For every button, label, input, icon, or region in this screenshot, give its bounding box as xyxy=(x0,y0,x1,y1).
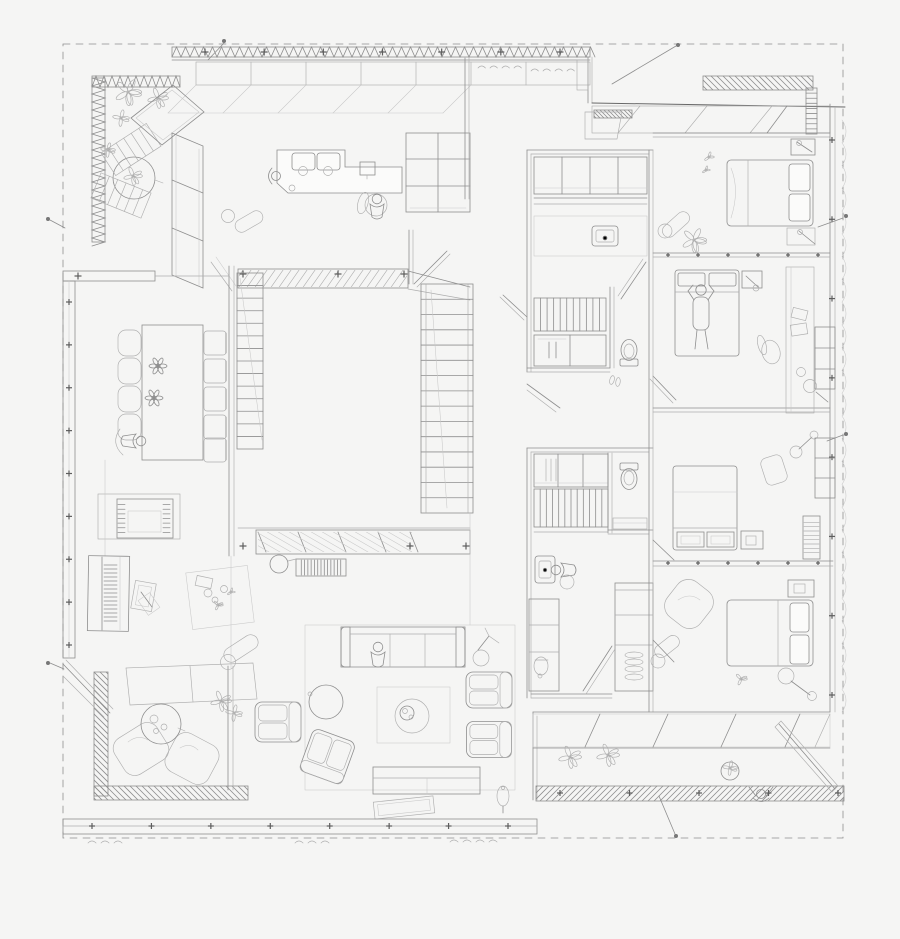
sofa xyxy=(341,627,465,667)
sideboard-rect xyxy=(128,511,161,532)
callout-dot xyxy=(844,432,848,436)
bedroom-2-rect xyxy=(790,323,808,336)
bathroom-b-rect xyxy=(613,518,647,529)
piano-corner xyxy=(87,556,160,632)
atrium-line xyxy=(410,532,418,552)
south-band-waves xyxy=(88,841,122,843)
atrium xyxy=(47,257,478,668)
door-leaf xyxy=(503,295,527,317)
desk-chair xyxy=(759,338,783,366)
play-rug-circle xyxy=(212,597,218,603)
terrace-south-line xyxy=(721,714,736,747)
roof-north-line xyxy=(333,85,361,113)
terrace-south-line xyxy=(659,796,675,834)
bedroom-2-line xyxy=(816,392,828,402)
play-rug-circle xyxy=(204,589,212,597)
nightstand xyxy=(788,580,814,597)
bathroom-a-circle xyxy=(603,236,607,240)
armchair xyxy=(466,672,512,708)
bathroom-b-ellipse xyxy=(625,674,643,680)
slippers-icon xyxy=(609,375,616,385)
bathroom-a xyxy=(527,150,676,412)
bathroom-a-line xyxy=(618,259,643,296)
armchair xyxy=(467,722,512,758)
roof-east-rect xyxy=(577,60,588,90)
bathroom-a-line xyxy=(527,390,556,412)
chair xyxy=(204,415,226,439)
floor-cushion xyxy=(161,728,224,789)
rug xyxy=(186,565,254,629)
stairs-down xyxy=(534,298,606,331)
terrace-south-line xyxy=(785,714,800,747)
play-rug xyxy=(186,565,254,629)
pillow xyxy=(790,603,809,632)
annotations-line xyxy=(612,46,676,84)
bedroom-master-plant xyxy=(702,166,710,173)
roof-north-line xyxy=(388,85,416,113)
bedroom-master-plant xyxy=(704,152,714,161)
bathroom-b-ellipse xyxy=(625,659,643,665)
chair xyxy=(204,438,226,462)
bedroom-master-line xyxy=(797,142,812,152)
corridor-line xyxy=(500,297,524,320)
sideboard-louver xyxy=(118,505,125,533)
pillow xyxy=(789,194,810,221)
roof-ladder xyxy=(806,88,817,134)
bedroom-3-louver xyxy=(804,522,819,552)
pillow xyxy=(790,635,809,664)
bedroom-2-circle xyxy=(804,380,817,393)
chair xyxy=(118,358,141,384)
door-leaf xyxy=(583,646,612,691)
armchair xyxy=(299,728,357,786)
bathroom-b-line xyxy=(586,649,615,694)
desk-chair xyxy=(355,191,370,215)
door-mat xyxy=(373,796,434,819)
sunken-lounge-path xyxy=(128,737,148,742)
patio-northwest-line xyxy=(172,228,203,241)
bathroom-a-line xyxy=(650,379,673,403)
bedroom-4-line xyxy=(791,681,810,695)
round-stool xyxy=(270,555,288,573)
roof-north-line xyxy=(223,85,251,113)
roof-north xyxy=(168,47,595,113)
atrium-line xyxy=(240,278,262,440)
play-rug-rect xyxy=(195,575,213,588)
vent-marks xyxy=(531,69,574,71)
bedroom-4 xyxy=(651,574,817,701)
glass-partition xyxy=(172,133,203,288)
shower-door xyxy=(621,262,646,299)
patio-northwest-line xyxy=(172,180,203,193)
dining-table xyxy=(142,325,203,460)
bolster xyxy=(652,633,682,660)
lower-wall-band xyxy=(63,819,537,834)
plant-icon xyxy=(558,745,581,768)
desk xyxy=(786,267,814,413)
plant-icon xyxy=(736,674,748,686)
bedroom-3-line xyxy=(799,437,812,449)
door-leaf xyxy=(414,251,447,284)
callout-dot xyxy=(844,214,848,218)
callout-dot xyxy=(222,39,226,43)
atrium-line xyxy=(431,290,447,508)
living-room-line xyxy=(478,636,489,650)
sunken-lounge-line xyxy=(190,666,193,702)
bathroom-a-ellipse xyxy=(615,377,621,387)
bolster xyxy=(221,632,261,665)
bathroom-b-circle xyxy=(543,568,546,571)
bedroom-2-line xyxy=(746,276,758,287)
living-room-line xyxy=(485,628,489,636)
cabinet xyxy=(529,599,559,691)
bridge-beam xyxy=(238,269,408,288)
living-room-circle xyxy=(400,706,414,720)
roof-north-line xyxy=(443,85,471,113)
stool xyxy=(560,575,574,589)
hedge-line xyxy=(842,120,846,712)
piano-corner-rect xyxy=(138,593,160,616)
bench xyxy=(787,228,815,245)
bedroom-3-rect xyxy=(746,536,756,545)
coffee-table xyxy=(395,699,429,733)
terrace-south-plant xyxy=(723,761,738,776)
roof-hatch-strip xyxy=(579,76,839,90)
low-table xyxy=(141,704,181,744)
bedroom-master xyxy=(658,139,815,253)
trellis-wall xyxy=(92,78,105,246)
wall-shelf xyxy=(815,438,835,498)
sunken-lounge-path xyxy=(180,745,198,750)
nightstand xyxy=(791,139,815,155)
pillow xyxy=(789,164,810,191)
sideboard xyxy=(98,460,180,556)
side-table xyxy=(309,685,343,719)
bedroom-4-circle xyxy=(808,692,817,701)
piano-keys xyxy=(104,565,117,621)
roof-east-line xyxy=(750,106,772,133)
bedroom-master-line xyxy=(799,231,815,244)
play-rug-circle xyxy=(221,586,228,593)
atrium-line xyxy=(298,532,306,552)
roof-north-line xyxy=(168,85,196,113)
sunken-lounge-circle xyxy=(161,724,167,730)
sunken-lounge-line xyxy=(178,728,185,731)
floor-lamp xyxy=(497,786,509,806)
bedroom-2-circle xyxy=(797,368,806,377)
beanbag xyxy=(659,574,719,635)
chair xyxy=(204,331,226,355)
piano xyxy=(87,556,129,632)
floor-plan xyxy=(0,0,900,939)
chair xyxy=(204,359,226,383)
nightstand xyxy=(741,531,763,549)
bedroom-2-rect xyxy=(791,307,808,320)
terrace-south-line xyxy=(585,714,600,747)
closet xyxy=(534,157,647,194)
dining-circle xyxy=(222,210,235,223)
sunken-lounge xyxy=(0,632,356,800)
bed xyxy=(673,466,737,550)
glass-corner xyxy=(63,664,110,713)
person-at-desk xyxy=(370,194,384,219)
south-band-waves xyxy=(295,841,329,843)
cabinet xyxy=(615,583,653,691)
roof-east-line xyxy=(767,106,787,133)
bedroom-3 xyxy=(653,431,835,560)
bedroom-2 xyxy=(675,267,835,413)
dining-path xyxy=(116,429,123,455)
living-room-line xyxy=(489,636,499,643)
patio-northwest-pline xyxy=(136,90,199,140)
tripod-lamp xyxy=(473,650,489,666)
bathroom-b-ellipse xyxy=(625,666,643,672)
towels xyxy=(625,652,643,658)
roof-east-hatch xyxy=(548,110,644,118)
toilet-icon xyxy=(620,340,638,367)
right-wall xyxy=(829,104,846,712)
chair xyxy=(118,414,141,440)
living-room-circle xyxy=(502,787,505,790)
door-leaf xyxy=(653,540,674,560)
south-band-waves xyxy=(450,840,497,842)
nightstand xyxy=(742,271,762,288)
toilet-icon xyxy=(620,463,638,490)
floor-plan-page xyxy=(0,0,900,939)
atrium-line xyxy=(408,289,470,300)
bolster xyxy=(660,209,692,240)
callout-dot xyxy=(46,217,50,221)
closet xyxy=(534,454,608,487)
living-room-circle xyxy=(403,709,408,714)
vanity-counter xyxy=(534,216,647,256)
corridor xyxy=(500,295,527,320)
lounge-wall xyxy=(94,786,248,800)
patio-northwest xyxy=(91,76,204,288)
chair xyxy=(118,386,141,412)
plant-icon xyxy=(112,109,129,126)
clerestory-band xyxy=(196,62,590,85)
living-room xyxy=(299,625,515,819)
atrium-line xyxy=(408,271,470,287)
kitchen-counter xyxy=(277,150,402,193)
patio-northwest-line xyxy=(155,180,163,183)
atrium-louver xyxy=(301,560,340,575)
chair xyxy=(204,387,226,411)
bedroom-4-rect xyxy=(794,584,805,593)
sliding-glazing xyxy=(533,714,830,747)
bathroom-b xyxy=(527,448,653,698)
roof-east-pline xyxy=(585,112,622,139)
play-rug-plant xyxy=(214,601,224,611)
terrace-south-cdot xyxy=(674,834,678,838)
door-leaf xyxy=(653,376,676,400)
louver-shelf xyxy=(237,273,263,449)
bedroom-4-path xyxy=(678,596,700,600)
chair xyxy=(118,330,141,356)
plant-icon xyxy=(682,228,707,253)
main-staircase xyxy=(421,284,473,513)
dining xyxy=(63,208,265,658)
door-leaf xyxy=(653,640,674,662)
atrium-line xyxy=(216,257,236,286)
armchair xyxy=(255,702,301,742)
bolster xyxy=(233,208,265,234)
living-room-rect xyxy=(378,799,431,815)
terrace-south-line xyxy=(779,724,835,789)
plant-icon xyxy=(115,79,142,106)
callout-dot xyxy=(46,661,50,665)
desk-chair xyxy=(759,453,789,486)
sunken-lounge-circle xyxy=(154,729,159,734)
lounge-wall xyxy=(0,786,270,800)
vent-marks xyxy=(478,66,521,68)
bathroom-a-line xyxy=(527,384,560,408)
roof-north-line xyxy=(278,85,306,113)
annotations-line xyxy=(50,663,64,669)
kitchen-office-line xyxy=(417,254,450,287)
sunken-lounge-circle xyxy=(150,715,158,723)
terrace-south-line xyxy=(653,714,668,747)
south-band xyxy=(63,819,537,843)
atrium-line xyxy=(288,559,296,561)
callout-dot xyxy=(676,43,680,47)
roof-east xyxy=(548,57,845,139)
roof-east-line xyxy=(685,106,707,133)
terrace-south-line xyxy=(815,714,830,747)
sideboard-louver xyxy=(163,505,170,533)
